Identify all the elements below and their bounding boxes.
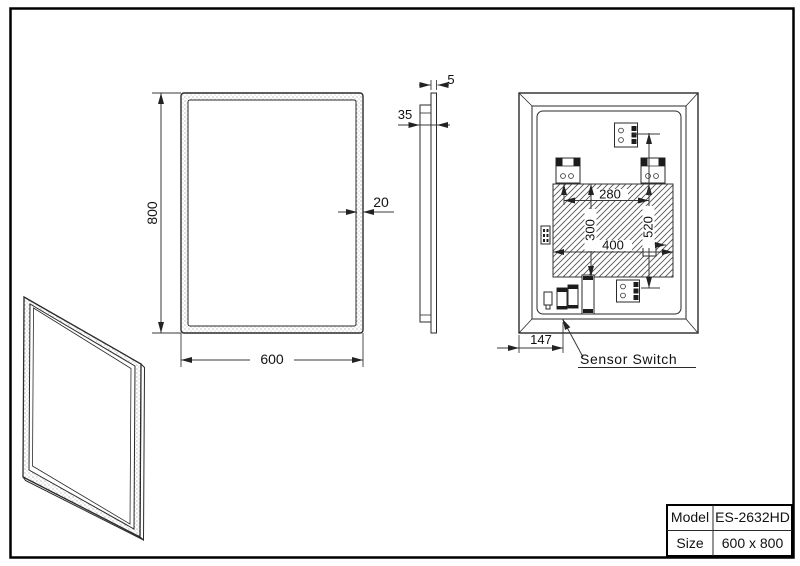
- dim-label-hole-spacing: 280: [599, 187, 621, 202]
- technical-drawing: 800 600 20 5 35: [0, 0, 800, 566]
- side-glass: [431, 93, 437, 333]
- model-label: Model: [671, 509, 709, 525]
- dim-label-zone-width: 400: [602, 238, 624, 253]
- dim-label-zone-height: 300: [583, 219, 598, 241]
- led-driver-box: [582, 275, 594, 314]
- connector-box-1: [557, 288, 567, 309]
- drawing-sheet: 800 600 20 5 35: [0, 0, 800, 566]
- size-label: Size: [676, 535, 703, 551]
- back-view: 280 300 520 400 147 Sensor Switch: [497, 93, 698, 368]
- dim-label-height: 800: [144, 201, 160, 225]
- perspective-view: [23, 297, 145, 540]
- side-view: 5 35: [398, 72, 455, 333]
- dim-label-glass: 5: [447, 72, 454, 87]
- dim-label-bracket-span: 520: [641, 216, 656, 238]
- dim-label-frame: 20: [373, 194, 389, 210]
- front-view: 800 600 20: [144, 93, 394, 367]
- connector-box-2: [568, 285, 578, 308]
- sensor-switch-label: Sensor Switch: [580, 351, 677, 367]
- terminal-block: [541, 226, 550, 244]
- dim-label-depth: 35: [398, 107, 412, 122]
- size-value: 600 x 800: [722, 535, 784, 551]
- dim-label-sensor-offset: 147: [530, 332, 552, 347]
- title-block: Model ES-2632HD Size 600 x 800: [667, 505, 792, 556]
- side-back-box: [420, 105, 431, 322]
- mirror-front-glass: [188, 100, 356, 326]
- bracket-bottom: [617, 280, 640, 302]
- model-value: ES-2632HD: [715, 509, 790, 525]
- dim-label-width: 600: [260, 351, 284, 367]
- bracket-hanger-right: [641, 158, 665, 183]
- bracket-top: [615, 123, 638, 147]
- bracket-hanger-left: [556, 158, 580, 183]
